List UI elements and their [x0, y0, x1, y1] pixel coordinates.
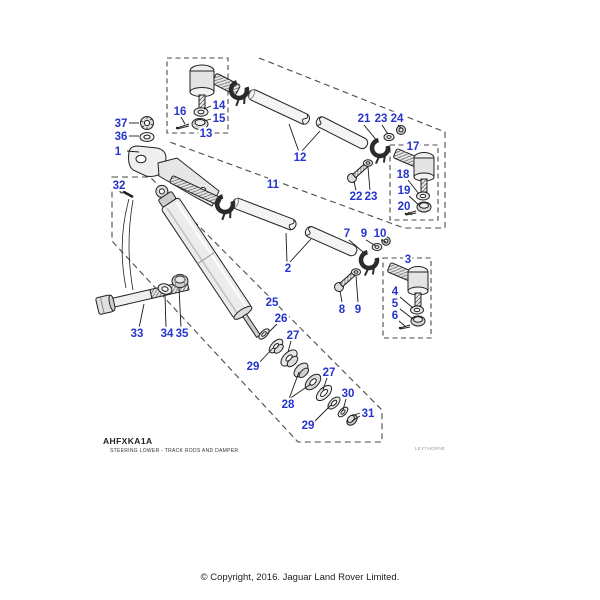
rod-clamp-7: [359, 250, 380, 276]
part-label-20-14: 20: [398, 201, 411, 213]
tube-12a: [247, 88, 311, 126]
part-label-15-5: 15: [213, 113, 226, 125]
part-label-10-21: 10: [374, 228, 387, 240]
part-label-8-22: 8: [339, 304, 346, 316]
leader-line-33: [139, 304, 144, 328]
part-label-35-40: 35: [176, 328, 189, 340]
part-label-23-9: 23: [375, 113, 388, 125]
part-label-28-33: 28: [282, 399, 295, 411]
leader-line-23: [368, 167, 370, 191]
watermark-text: LEYTHORNE: [415, 446, 445, 451]
part-label-29-32: 29: [247, 361, 260, 373]
figure-subtitle: STEERING LOWER - TRACK RODS AND DAMPER: [110, 448, 238, 454]
leader-line-31: [354, 413, 360, 415]
part-label-2-18: 2: [285, 263, 291, 275]
rod-clamp-21: [370, 138, 391, 164]
part-label-30-35: 30: [342, 388, 355, 400]
part-label-6-27: 6: [392, 310, 398, 322]
tube-2a: [231, 197, 297, 231]
leader-line-29: [312, 405, 331, 424]
damper-bush-stack: [257, 327, 359, 427]
part-label-19-13: 19: [398, 185, 411, 197]
part-label-3-24: 3: [405, 254, 411, 266]
leader-line-34: [165, 295, 166, 328]
exploded-parts-diagram: 1373616141513122123241718192022231127910…: [0, 0, 600, 520]
part-label-17-11: 17: [407, 141, 420, 153]
part-label-13-6: 13: [200, 128, 213, 140]
part-label-21-8: 21: [358, 113, 371, 125]
leader-line-9: [366, 240, 376, 246]
part-label-27-34: 27: [323, 367, 336, 379]
nut-31: [345, 413, 359, 427]
part-label-25-29: 25: [266, 297, 279, 309]
leader-line-28: [289, 384, 311, 399]
rod-clamp-drag-link: [215, 194, 238, 221]
leader-line-6: [399, 321, 405, 326]
washer-30: [336, 405, 349, 418]
part-label-9-23: 9: [355, 304, 361, 316]
part-label-14-4: 14: [213, 100, 226, 112]
part-label-22-15: 22: [350, 191, 363, 203]
leader-line-23: [382, 125, 388, 134]
leader-line-4: [400, 297, 413, 308]
part-label-33-38: 33: [131, 328, 144, 340]
part-label-5-26: 5: [392, 298, 399, 310]
part-label-32-28: 32: [113, 180, 126, 192]
part-label-37-1: 37: [115, 118, 128, 130]
washer-23b: [364, 160, 373, 167]
part-label-9-20: 9: [361, 228, 367, 240]
leader-line-2: [286, 233, 287, 263]
leader-line-35: [179, 288, 181, 328]
bush-29a: [267, 337, 287, 357]
leader-line-2: [289, 239, 311, 263]
leader-line-9: [356, 276, 358, 302]
washer-23a: [384, 133, 394, 140]
part-label-4-25: 4: [392, 286, 399, 298]
nut-24: [397, 126, 406, 135]
washer-29b: [326, 395, 342, 411]
part-label-23-16: 23: [365, 191, 378, 203]
lock-washer-37: [141, 117, 154, 130]
parts-diagram-page: 1373616141513122123241718192022231127910…: [0, 0, 600, 600]
copyright-text: © Copyright, 2016. Jaguar Land Rover Lim…: [0, 572, 600, 583]
washer-9b: [352, 269, 361, 276]
rod-clamp-upper-left: [229, 80, 252, 107]
part-label-29-36: 29: [302, 420, 315, 432]
part-label-26-30: 26: [275, 313, 288, 325]
part-label-7-19: 7: [344, 228, 350, 240]
part-label-12-7: 12: [294, 152, 307, 164]
part-label-16-3: 16: [174, 106, 187, 118]
leader-line-22: [354, 181, 356, 191]
part-label-34-39: 34: [161, 328, 174, 340]
part-label-1-0: 1: [115, 146, 122, 158]
leader-line-16: [181, 117, 185, 124]
nut-35: [172, 275, 188, 288]
part-label-18-12: 18: [397, 169, 410, 181]
part-label-24-10: 24: [391, 113, 404, 125]
leader-line-12: [289, 124, 299, 152]
leader-line-28: [289, 372, 299, 399]
clip-32: [120, 189, 133, 290]
washer-36: [140, 133, 154, 142]
figure-code: AHFXKA1A: [103, 436, 152, 446]
part-label-27-31: 27: [287, 330, 300, 342]
part-label-36-2: 36: [115, 131, 128, 143]
leader-line-8: [340, 291, 342, 302]
part-label-31-37: 31: [362, 408, 375, 420]
part-label-11-17: 11: [267, 179, 280, 191]
leader-line-12: [301, 131, 320, 152]
